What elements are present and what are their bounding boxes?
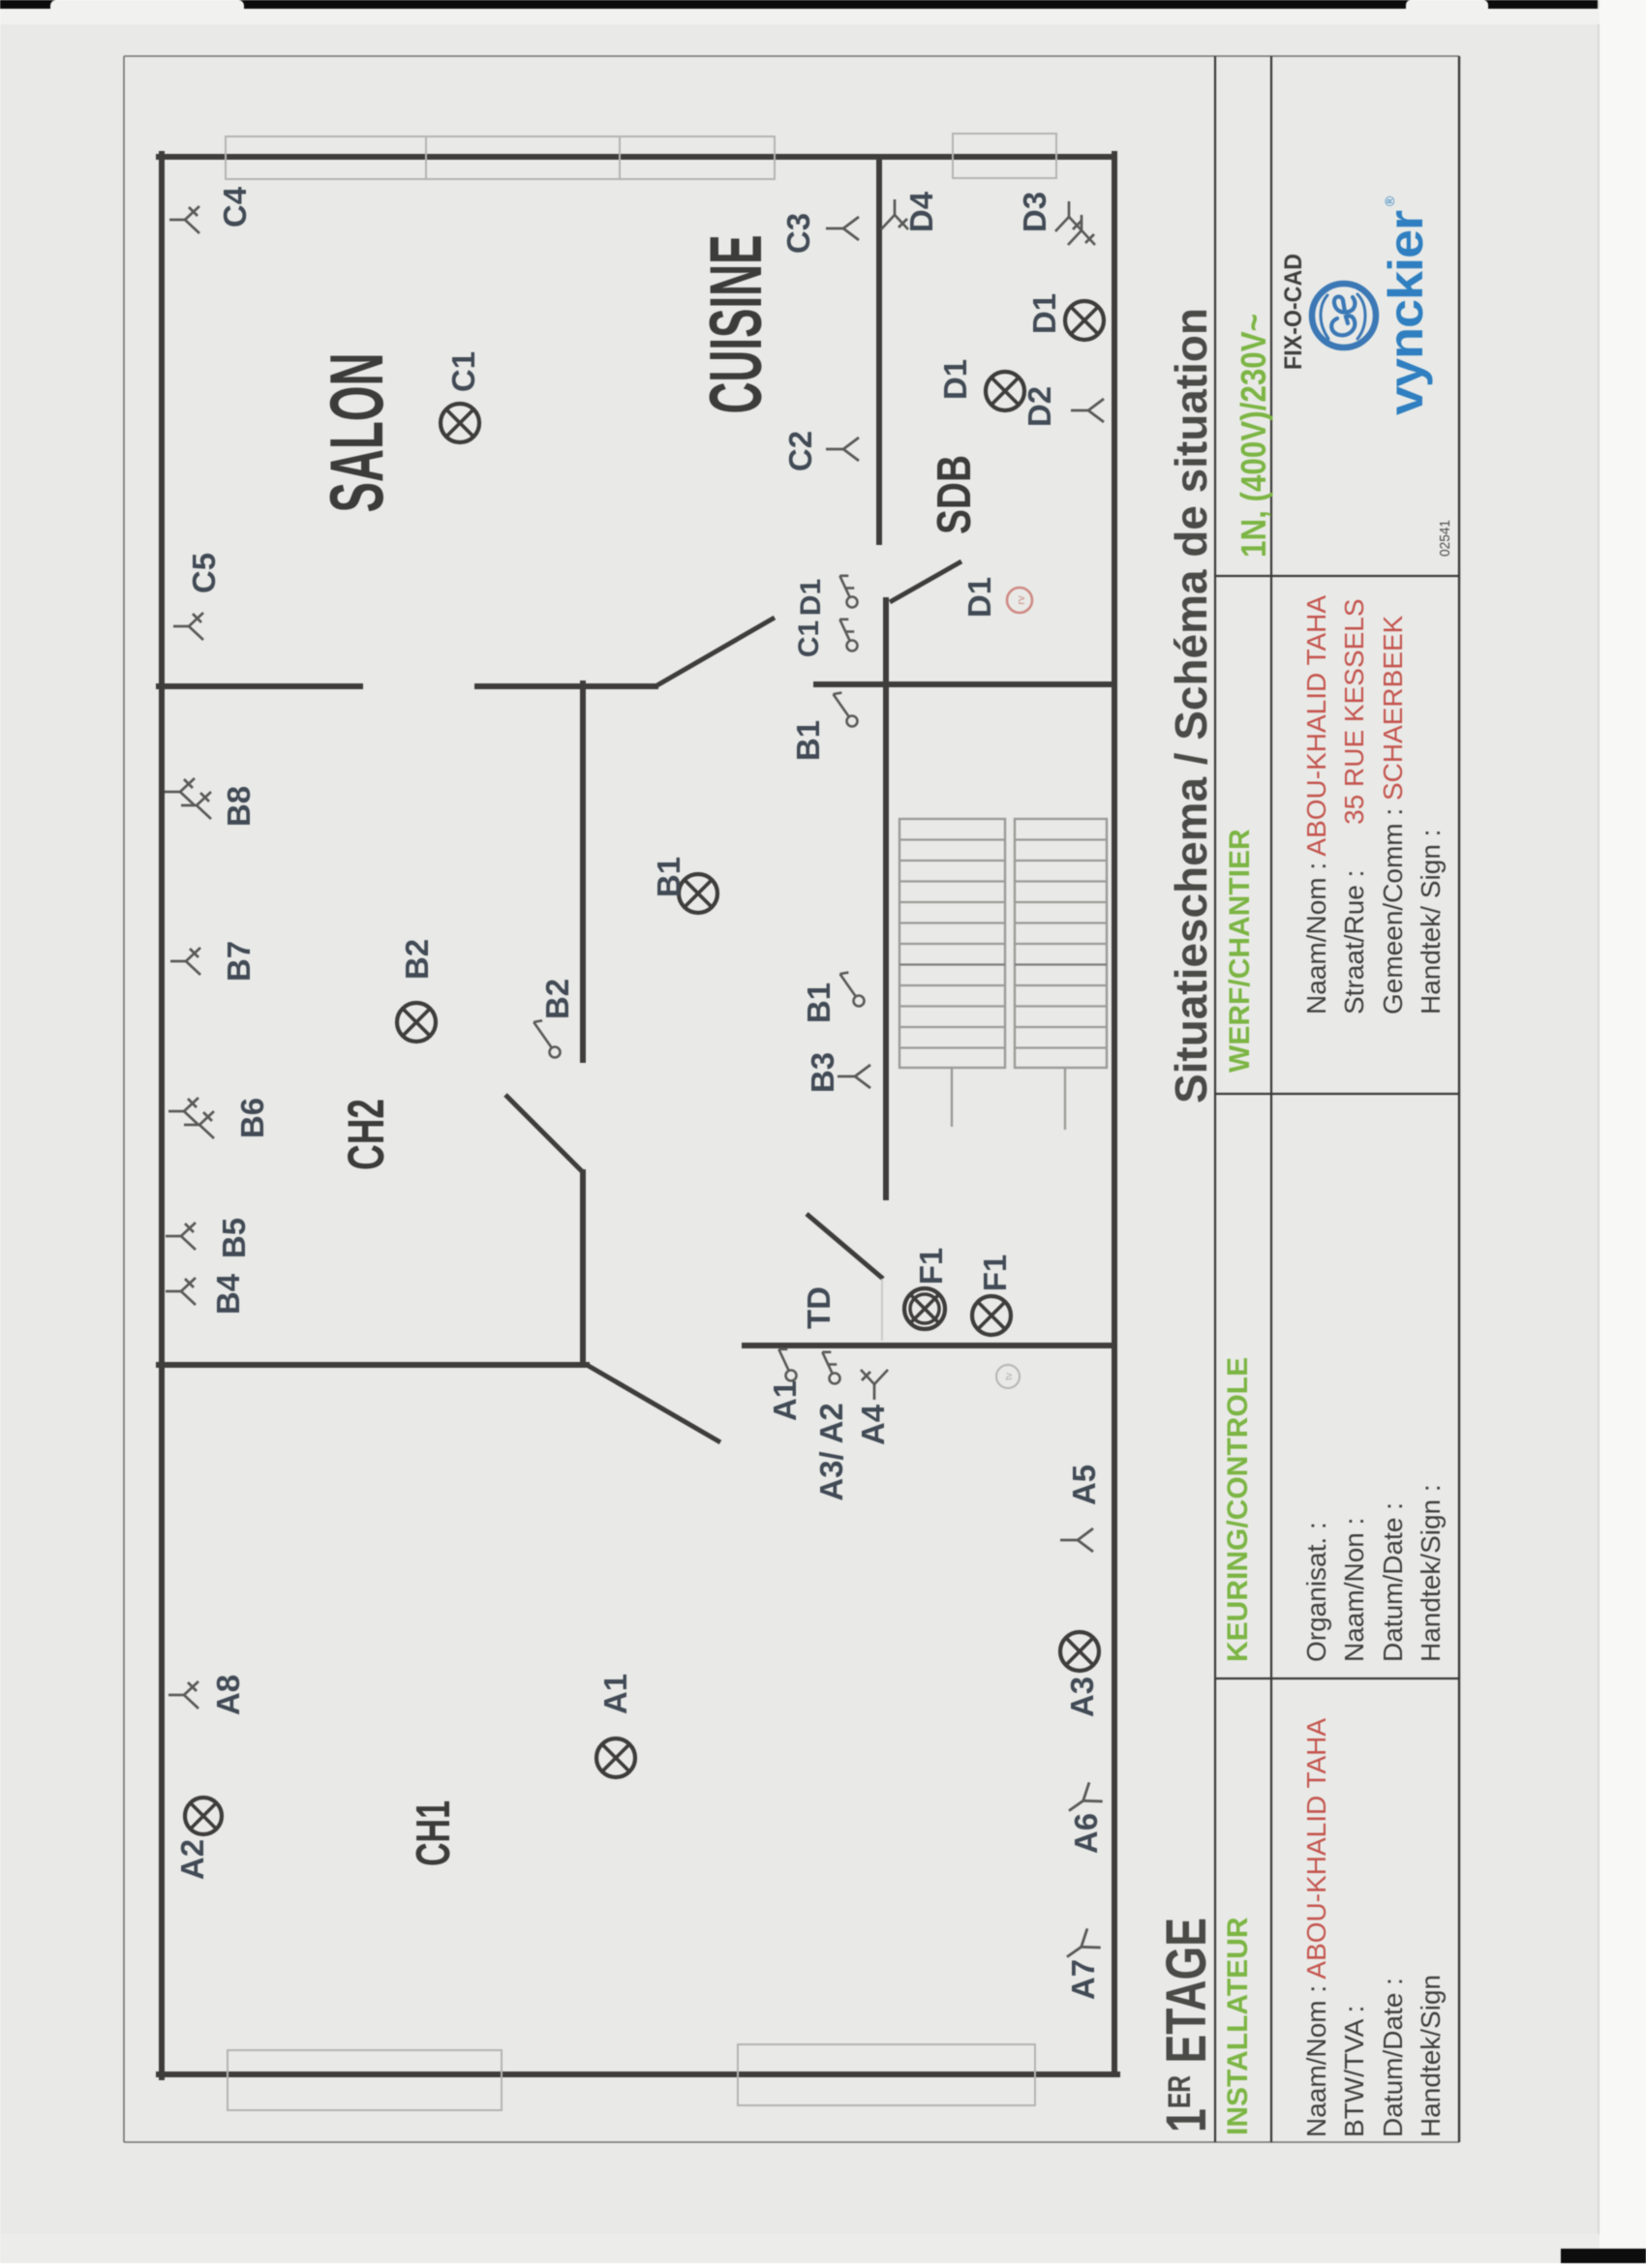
- svg-text:F1: F1: [913, 1248, 949, 1285]
- svg-text:A6: A6: [1068, 1813, 1104, 1854]
- svg-text:B1: B1: [651, 857, 686, 897]
- svg-text:SALON: SALON: [314, 353, 399, 513]
- svg-text:Situatieschema / Schéma de sit: Situatieschema / Schéma de situation: [1166, 308, 1216, 1104]
- svg-text:Gemeen/Comm : SCHAERBEEK: Gemeen/Comm : SCHAERBEEK: [1378, 615, 1408, 1014]
- svg-text:rv: rv: [1016, 595, 1027, 605]
- svg-text:B2: B2: [399, 939, 435, 980]
- svg-text:D3: D3: [1017, 192, 1052, 232]
- svg-text:Datum/Date :: Datum/Date :: [1378, 1502, 1408, 1662]
- svg-text:C4: C4: [217, 186, 253, 227]
- svg-text:FIX-O-CAD: FIX-O-CAD: [1280, 254, 1307, 370]
- svg-text:D1: D1: [961, 577, 997, 618]
- svg-text:Naam/Nom : ABOU-KHALID TAHA: Naam/Nom : ABOU-KHALID TAHA: [1301, 1718, 1331, 2137]
- svg-text:Straat/Rue : 35 RUE KESS: Straat/Rue : 35 RUE KESSELS: [1339, 598, 1369, 1014]
- svg-text:A2: A2: [174, 1839, 210, 1880]
- svg-text:Handtek/Sign :: Handtek/Sign :: [1416, 1484, 1446, 1662]
- svg-text:B8: B8: [221, 786, 257, 827]
- svg-text:C3: C3: [780, 213, 816, 254]
- svg-text:Naam/Nom : ABOU-KHALID TAHA: Naam/Nom : ABOU-KHALID TAHA: [1301, 595, 1331, 1014]
- svg-text:Naam/Non :: Naam/Non :: [1339, 1518, 1369, 1662]
- svg-text:B6: B6: [234, 1098, 270, 1138]
- svg-text:02541: 02541: [1437, 520, 1453, 557]
- svg-text:1N, (400V)/230V~: 1N, (400V)/230V~: [1234, 314, 1273, 558]
- svg-text:A1: A1: [767, 1380, 803, 1421]
- svg-text:A1: A1: [597, 1674, 633, 1714]
- svg-text:Handtek/ Sign :: Handtek/ Sign :: [1416, 830, 1446, 1014]
- svg-text:A4: A4: [855, 1404, 891, 1445]
- svg-text:KEURING/CONTROLE: KEURING/CONTROLE: [1222, 1357, 1254, 1662]
- svg-text:CH2: CH2: [338, 1099, 395, 1170]
- svg-text:B2: B2: [539, 979, 575, 1019]
- svg-text:A3: A3: [1064, 1677, 1100, 1717]
- svg-text:D1: D1: [1026, 293, 1062, 334]
- svg-text:Datum/Date :: Datum/Date :: [1378, 1978, 1408, 2137]
- svg-text:Organisat. :: Organisat. :: [1301, 1522, 1331, 1662]
- svg-text:vynckier: vynckier: [1379, 210, 1433, 415]
- svg-text:B4: B4: [210, 1273, 246, 1315]
- svg-text:B5: B5: [216, 1218, 252, 1258]
- svg-text:A7: A7: [1065, 1959, 1101, 2000]
- svg-text:A8: A8: [210, 1675, 246, 1715]
- svg-text:B3: B3: [805, 1052, 840, 1093]
- svg-text:C1: C1: [793, 620, 825, 657]
- svg-text:BTW/TVA :: BTW/TVA :: [1339, 2006, 1369, 2137]
- svg-text:D1: D1: [795, 579, 827, 616]
- svg-text:CH1: CH1: [408, 1800, 460, 1866]
- svg-text:D2: D2: [1021, 386, 1057, 427]
- svg-text:C1: C1: [445, 351, 481, 392]
- svg-text:TD: TD: [801, 1286, 837, 1329]
- svg-text:tv: tv: [1004, 1373, 1015, 1380]
- svg-text:F1: F1: [977, 1255, 1013, 1292]
- svg-text:D4: D4: [903, 191, 939, 232]
- svg-text:B1: B1: [801, 983, 837, 1023]
- svg-text:Handtek/Sign: Handtek/Sign: [1416, 1975, 1446, 2137]
- svg-text:D1: D1: [937, 359, 973, 400]
- svg-text:WERF/CHANTIER: WERF/CHANTIER: [1224, 829, 1256, 1073]
- svg-text:B1: B1: [790, 720, 826, 761]
- svg-text:INSTALLATEUR: INSTALLATEUR: [1222, 1917, 1254, 2135]
- svg-text:®: ®: [1382, 196, 1397, 206]
- svg-text:SDB: SDB: [929, 455, 981, 534]
- svg-text:B7: B7: [221, 941, 257, 982]
- svg-text:CUISINE: CUISINE: [695, 235, 777, 414]
- svg-text:A5: A5: [1066, 1465, 1102, 1505]
- svg-text:C2: C2: [782, 431, 818, 471]
- svg-text:A3/ A2: A3/ A2: [813, 1403, 849, 1500]
- svg-text:C5: C5: [186, 553, 222, 593]
